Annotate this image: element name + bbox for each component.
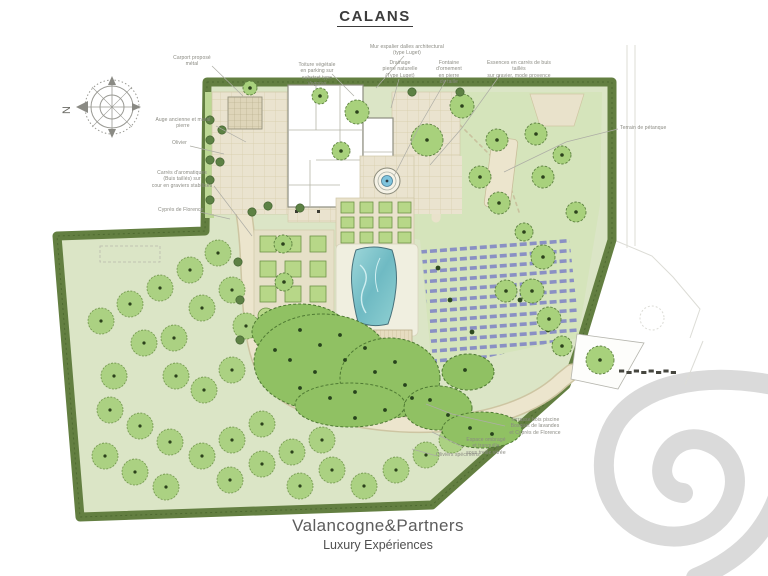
annotation-boxwood: Essences en carrés de buis taillés sur g… — [484, 60, 554, 79]
page-title: CALANS — [300, 8, 450, 25]
annotation-pool-terrace: Terrasse bois piscine Bosquet de lavande… — [504, 417, 566, 436]
annotation-aromatics: Carrés d'aromatiques (Buis taillés) sur … — [148, 170, 216, 189]
annotation-carport: Carport proposé métal — [166, 55, 218, 68]
brand-watermark-spiral — [604, 380, 768, 576]
site-plan-drawing: N — [0, 0, 768, 576]
annotation-cypress: Cyprès de Florence — [158, 207, 204, 213]
annotation-fountain: Fontaine d'ornement en pierre de taille — [428, 60, 470, 85]
annotation-olive: Olivier — [172, 140, 202, 146]
brand-tagline: Luxury Expériences — [250, 538, 506, 552]
footer-branding: Valancogne&Partners Luxury Expériences — [250, 516, 506, 552]
corner-parcel — [571, 334, 644, 389]
annotation-trough: Auge ancienne et mural pierre — [150, 117, 216, 130]
annotation-green-roof: Toiture végétale en parking sur substrat… — [294, 62, 340, 87]
garden-masterplan-page: N CALANS Carport proposé métal Toiture v… — [0, 0, 768, 576]
annotation-drainage: Drainage pierre naturelle (Type Luget) — [381, 60, 419, 79]
annotation-olive-specimens: Oliviers spécimens — [436, 452, 486, 458]
brand-name: Valancogne&Partners — [250, 516, 506, 536]
neighbor-parcel-lines — [614, 45, 703, 385]
annotation-wall: Mur espalier dalles architectural (type … — [370, 44, 444, 57]
compass-north-letter: N — [61, 106, 73, 114]
annotation-petanque: Terrain de pétanque — [620, 125, 674, 131]
boxwood-parterre — [336, 198, 414, 246]
compass-rose: N — [61, 76, 141, 138]
